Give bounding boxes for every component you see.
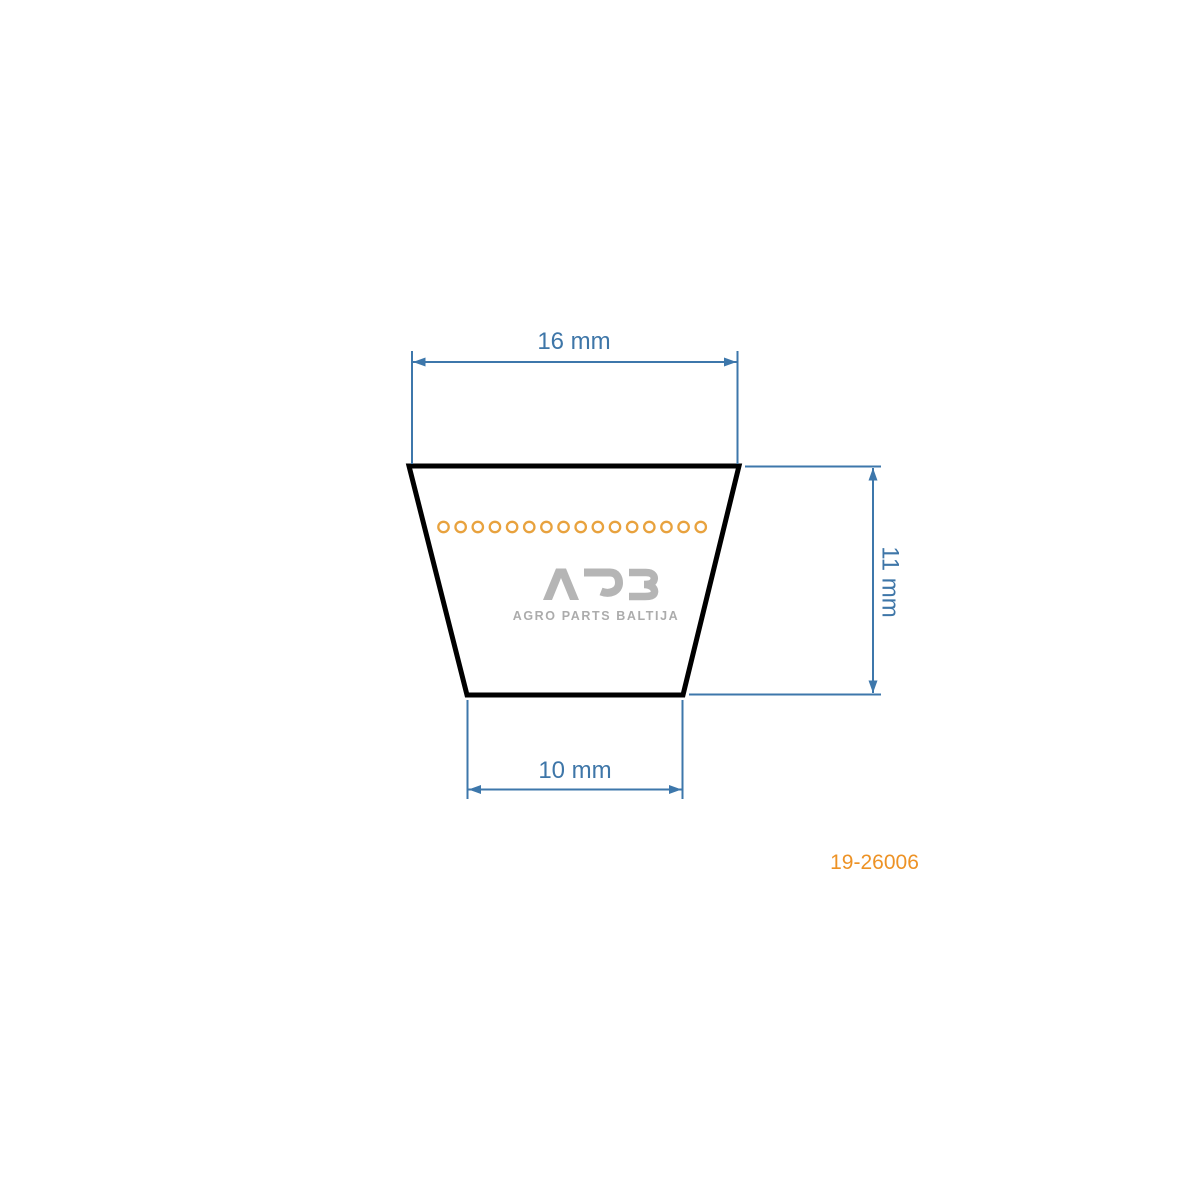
dimension-label-top-width: 16 mm xyxy=(537,328,610,355)
belt-cross-section-diagram: AGRO PARTS BALTIJA 16 mm 11 mm 10 mm 19-… xyxy=(0,0,1188,1188)
dimension-top-width: 16 mm xyxy=(412,328,738,464)
dimension-bottom-width: 10 mm xyxy=(468,700,683,799)
dimension-label-bottom-width: 10 mm xyxy=(538,757,611,784)
belt-cross-section-outline xyxy=(409,466,739,695)
logo-subtext: AGRO PARTS BALTIJA xyxy=(513,609,680,623)
belt-diagram-page: AGRO PARTS BALTIJA 16 mm 11 mm 10 mm 19-… xyxy=(0,0,1188,1188)
dimension-label-height: 11 mm xyxy=(877,546,904,618)
part-number: 19-26006 xyxy=(830,851,919,874)
